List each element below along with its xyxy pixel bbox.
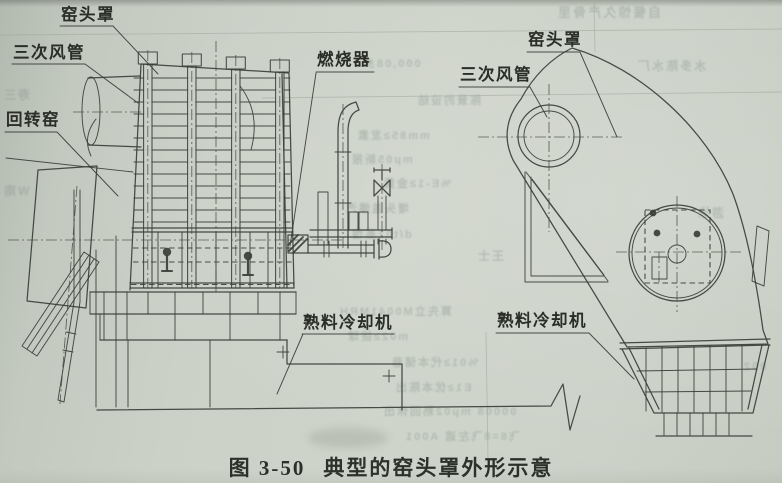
figure-title: 典型的窑头罩外形示意 — [323, 456, 553, 480]
figure-number: 图 3-50 — [229, 456, 306, 480]
base-and-cooler-inlet — [90, 292, 402, 410]
clinker-cooler-grate — [620, 339, 770, 436]
kiln-hood-front-box — [130, 41, 294, 292]
chute-bars — [22, 252, 99, 356]
label-rotary-kiln: 回转窑 — [6, 111, 60, 129]
burner-pipe — [308, 239, 391, 259]
hood-rib-rungs — [134, 78, 290, 222]
label-clinker-cooler-left: 熟料冷却机 — [303, 314, 393, 332]
support-rail — [310, 228, 392, 239]
rotary-kiln-and-seal — [6, 158, 133, 407]
label-kiln-hood-left: 窑头罩 — [61, 6, 115, 24]
stand-column — [318, 192, 328, 244]
label-tertiary-air-duct-right: 三次风管 — [460, 66, 532, 84]
hood-vertical-ribs — [138, 50, 289, 288]
ground-line-with-break — [97, 384, 580, 430]
label-kiln-hood-right: 窑头罩 — [528, 31, 582, 49]
label-tertiary-air-duct-left: 三次风管 — [13, 44, 85, 62]
right-view-side-elevation — [459, 48, 770, 436]
label-burner: 燃烧器 — [317, 51, 371, 69]
figure-caption: 图 3-50典型的窑头罩外形示意 — [0, 452, 782, 482]
seal-panel — [27, 166, 97, 308]
burner-assembly — [288, 102, 392, 259]
technical-drawing — [0, 0, 782, 483]
label-clinker-cooler-right: 熟料冷却机 — [497, 312, 587, 330]
tertiary-air-duct-circle — [478, 84, 622, 232]
kiln-door-circle — [616, 196, 742, 312]
scanned-book-page: 自餐惊久产骨里水多陈水厂000,08乡陈景的设结mm85≥发素mμ05新报%E-… — [0, 0, 782, 483]
duct-support-bracket — [525, 172, 608, 282]
fuel-riser-pipe — [338, 102, 359, 248]
valve-fitting — [243, 252, 253, 275]
valve-fitting — [162, 248, 172, 271]
